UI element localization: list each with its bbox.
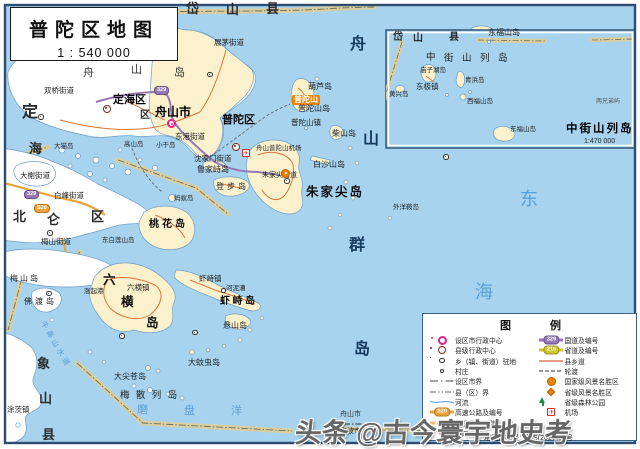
map-label: 东 [520, 190, 538, 208]
map-label: 佛渡岛 [24, 298, 57, 306]
map-label: 岱 [393, 33, 403, 43]
county-icon [429, 345, 455, 355]
legend-row: 设区市界 [429, 376, 538, 386]
title-box: 普陀区地图 1 : 540 000 [10, 7, 178, 61]
map-label: 大猫岛 [54, 144, 74, 151]
map-label: 县 [449, 33, 459, 43]
legend-label: 县级行政中心 [455, 345, 496, 355]
map-label: 六 [103, 274, 116, 287]
map-label: 虾峙镇 [199, 275, 222, 283]
map-label: 区 [91, 210, 104, 223]
city-symbol [167, 119, 176, 128]
map-label: 桃花岛 [149, 220, 188, 230]
legend-row: 329国道及编号 [538, 335, 632, 345]
map-label: 北 [13, 210, 26, 223]
map-title: 普陀区地图 [11, 15, 177, 42]
map-label: 岱 [186, 2, 199, 15]
map-label: 中 [426, 54, 438, 64]
map-label: 登步岛 [216, 183, 249, 191]
map-label: 普陀山镇 [291, 119, 321, 127]
map-label: 定 [22, 105, 38, 121]
map-label: 舟山普陀山机场 [256, 146, 302, 153]
map-label: 舟 [350, 37, 366, 53]
legend-label: 县乡道 [564, 356, 584, 366]
legend-title: 图 例 [429, 317, 632, 333]
map-label: 双桥街道 [44, 87, 74, 95]
legend-row: 国家级风景名胜区 [538, 376, 632, 386]
map-label: 1:470 000 [584, 138, 615, 145]
village-icon [429, 366, 455, 376]
map-label: 象 [37, 357, 50, 370]
map-label: 街 [444, 55, 456, 65]
map-label: 海 [475, 283, 493, 301]
legend-row: 县级行政中心 [429, 345, 538, 355]
map-label: 东白莲山岛 [102, 238, 135, 245]
map-label: 山 [39, 392, 52, 405]
map-label: 大蚊虫岛 [188, 359, 220, 367]
legend-row: 县乡道 [538, 356, 632, 366]
map-label: 舟山市 [155, 106, 191, 118]
map-label: 山 [226, 3, 239, 16]
map-label: 舟 [83, 68, 94, 79]
legend-row: 村庄 [429, 366, 538, 376]
road-number-badge: 329 [24, 190, 39, 199]
map-label: 大榭街道 [20, 172, 50, 180]
map-label: 白峰街道 [54, 192, 84, 200]
watermark: 头条 @古今寰宇地史考 [294, 411, 574, 449]
map-label: 县 [42, 428, 55, 441]
map-label: 东福山岛 [510, 127, 536, 134]
sd-icon: 216 [538, 345, 564, 355]
legend-label: 村庄 [455, 366, 469, 376]
map-label: 山 [131, 65, 142, 76]
map-label: 黄兴岛 [389, 92, 409, 99]
map-label: 普陀山岛 [298, 105, 330, 113]
map-label: 东极镇 [416, 83, 439, 91]
map-label: 外洋鞍岛 [393, 205, 419, 212]
provscenic-icon [538, 387, 564, 397]
map-label: 小干岛 [156, 143, 176, 150]
map-label: 区 [140, 111, 150, 121]
legend-label: 国道及编号 [564, 335, 598, 345]
map-label: 海 [29, 142, 42, 155]
map-label: 白沙山岛 [313, 161, 345, 169]
road-number-badge: S20 [34, 204, 50, 213]
map-label: 群 [349, 238, 365, 254]
map-label: 葫芦岛 [308, 83, 332, 91]
county-symbol [103, 105, 111, 113]
legend-label: 省级森林公园 [564, 397, 605, 407]
town-symbol [47, 230, 53, 236]
legend-label: 省级风景名胜区 [564, 387, 612, 397]
map-label: 高山岛 [124, 142, 144, 149]
map-label: 梅山街道 [41, 238, 71, 246]
legend-label: 轮渡 [564, 366, 578, 376]
legend-label: 设区市行政中心 [455, 335, 503, 345]
legend-row: 设区市行政中心 [429, 335, 538, 345]
airport-symbol: ✈ [242, 149, 250, 157]
town-icon [429, 356, 455, 366]
map-label: 河泥漕 [226, 286, 246, 293]
city-icon [429, 335, 455, 345]
map-label: 青浜岛 [465, 78, 485, 85]
map-label: 两兄弟屿 [596, 99, 620, 105]
map-label: 洋 [231, 406, 242, 417]
county-symbol [232, 143, 240, 151]
map-scale: 1 : 540 000 [11, 46, 177, 60]
map-label: 西福山岛 [467, 99, 493, 106]
countyline-icon [429, 387, 455, 397]
map-label: 六横镇 [127, 284, 150, 292]
forest-icon [538, 397, 564, 407]
countyroad-icon [538, 356, 564, 366]
ferry-icon [538, 366, 564, 376]
map-label: 柴山岛 [332, 130, 356, 138]
town-symbol [207, 72, 213, 78]
legend-row: 河流 [429, 397, 538, 407]
legend-row: 县（区）界 [429, 386, 538, 396]
legend-row: 省级风景名胜区 [538, 386, 632, 396]
map-label: 朱家尖街道 [262, 172, 297, 179]
road-number-badge: 329 [154, 86, 169, 95]
map-label: 大尖苍岛 [114, 373, 146, 381]
map-label: 仑 [47, 213, 60, 226]
map-label: 涨起港 [84, 289, 104, 296]
legend-label: 乡（镇、街道）驻地 [455, 356, 516, 366]
river-icon [429, 397, 455, 407]
legend-label: 设区市界 [455, 376, 482, 386]
map-page: 普陀区地图 1 : 540 000 岱山县舟山岛双桥街道定海区舟山市定海区展茅街… [0, 0, 640, 449]
map-label: 涂茨镇 [7, 406, 30, 414]
map-label: 沈家门街道 [194, 155, 232, 163]
map-label: 鲁家峙岛 [197, 166, 229, 174]
map-label: 山 [462, 55, 474, 65]
map-label: 悬山岛 [223, 322, 247, 330]
map-label: 梅 山 岛 [10, 275, 38, 283]
village-symbol [221, 288, 226, 293]
map-label: 山 [413, 34, 423, 44]
town-symbol [38, 114, 44, 120]
town-symbol [284, 178, 290, 184]
map-label: 县 [266, 2, 279, 15]
map-label: 盘 [184, 406, 195, 417]
map-label: 山 [363, 132, 379, 148]
town-symbol [46, 291, 52, 297]
map-label: 横 [121, 296, 134, 309]
map-label: 蚂蚁岛 [174, 196, 194, 203]
natscenic-icon [538, 376, 564, 386]
town-symbol [192, 330, 198, 336]
cityline-icon [429, 376, 455, 386]
legend-label: 县（区）界 [455, 387, 489, 397]
map-label: 磨 [137, 405, 148, 416]
map-label: 中街山列岛 [566, 124, 634, 136]
town-symbol [443, 154, 449, 160]
map-label: 列 [480, 55, 492, 65]
legend-label: 省道及编号 [564, 345, 598, 355]
legend-row: 216省道及编号 [538, 345, 632, 355]
map-label: 东福山岛 [488, 29, 520, 37]
legend-label: 河流 [455, 397, 469, 407]
legend-label: 国家级风景名胜区 [564, 376, 618, 386]
map-label: 定海区 [113, 95, 146, 106]
map-label: 展茅街道 [214, 39, 244, 47]
map-label: 庙子湖岛 [420, 68, 446, 75]
map-label: 岛 [174, 68, 185, 79]
legend-row: 省级森林公园 [538, 397, 632, 407]
gd-icon: 329 [538, 335, 564, 345]
map-label: 朱家尖岛 [306, 186, 364, 199]
map-label: 虾 峙 岛 [220, 297, 255, 307]
legend-row: 轮渡 [538, 366, 632, 376]
map-label: 岛 [146, 317, 159, 330]
map-label: 东港街道 [175, 133, 205, 141]
map-label: 岛 [498, 55, 510, 65]
map-label: 岛 [354, 342, 370, 358]
map-label: 梅 散 列 岛 [120, 392, 179, 402]
map-label: 普陀区 [222, 115, 255, 126]
nat-symbol [281, 169, 290, 178]
town-symbol [119, 333, 125, 339]
legend-row: 乡（镇、街道）驻地 [429, 356, 538, 366]
